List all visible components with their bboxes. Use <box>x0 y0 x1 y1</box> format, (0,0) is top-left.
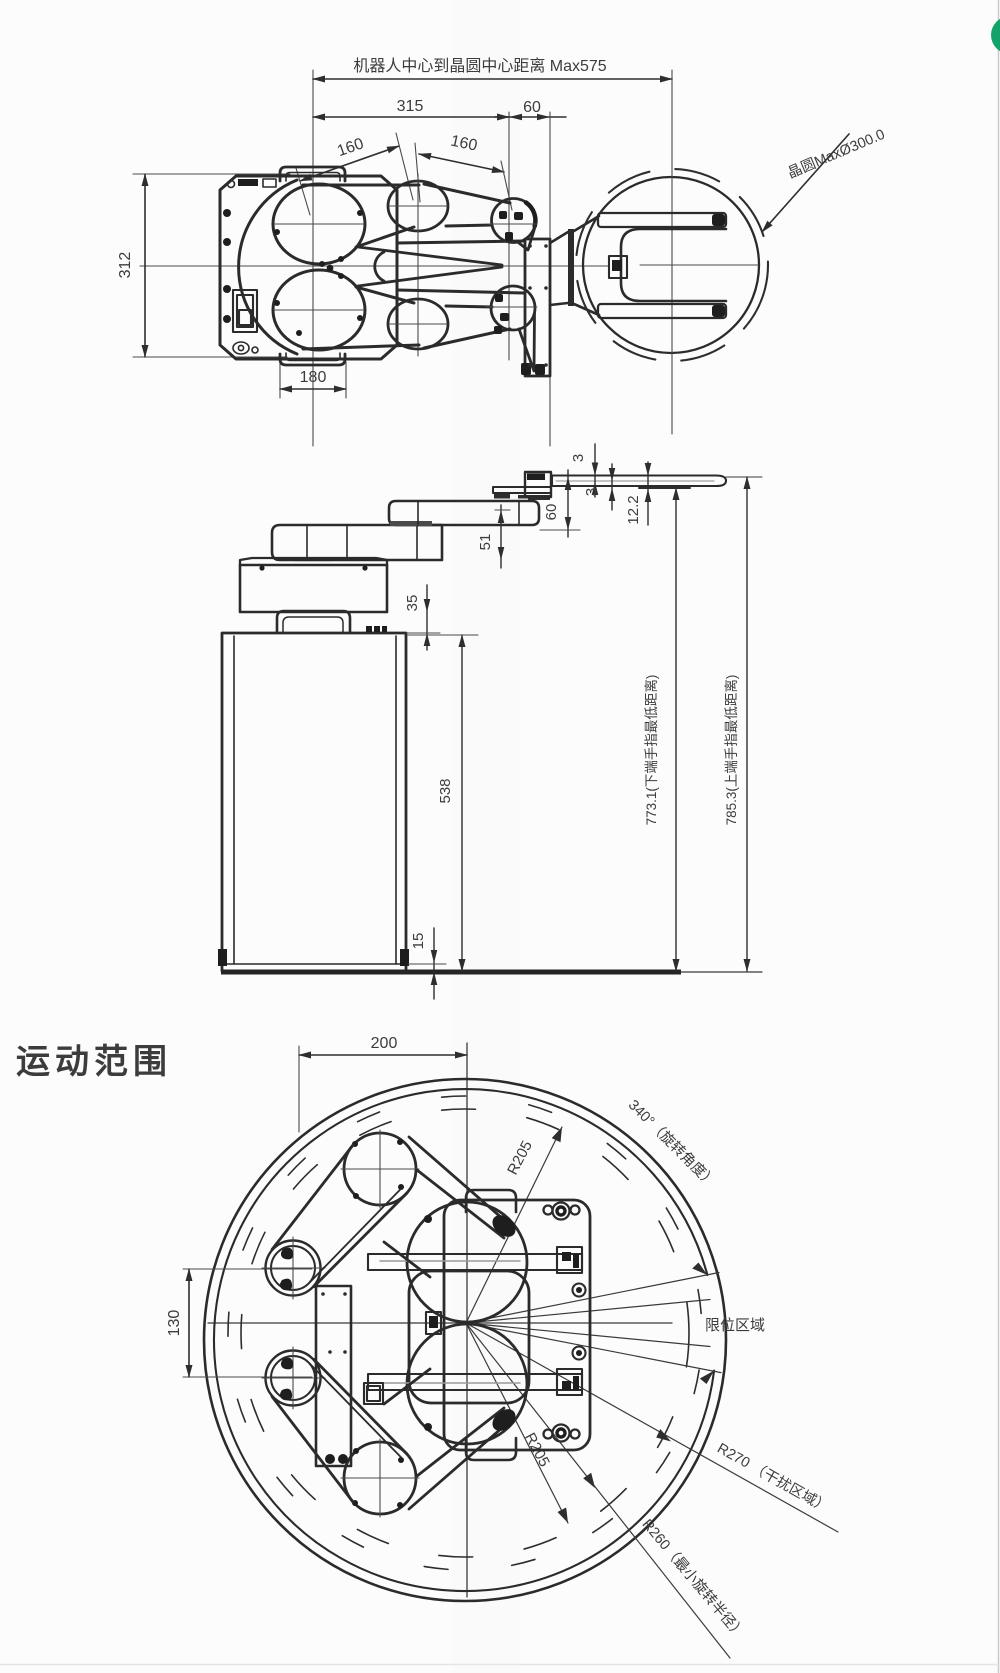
svg-text:12.2: 12.2 <box>625 495 642 524</box>
svg-text:60: 60 <box>543 504 560 521</box>
svg-text:R260（最小旋转半径）: R260（最小旋转半径） <box>639 1516 749 1642</box>
svg-text:538: 538 <box>437 778 454 803</box>
svg-text:315: 315 <box>397 98 424 115</box>
svg-text:晶圆MaxØ300.0: 晶圆MaxØ300.0 <box>785 127 887 182</box>
svg-text:773.1(下端手指最低距离): 773.1(下端手指最低距离) <box>643 675 659 826</box>
svg-text:机器人中心到晶圆中心距离 Max575: 机器人中心到晶圆中心距离 Max575 <box>353 57 606 75</box>
svg-text:312: 312 <box>117 252 134 279</box>
svg-text:限位区域: 限位区域 <box>705 1317 765 1334</box>
svg-text:运动范围: 运动范围 <box>16 1043 172 1081</box>
svg-text:130: 130 <box>166 1310 183 1337</box>
svg-text:15: 15 <box>410 933 427 950</box>
svg-text:3: 3 <box>583 488 600 496</box>
svg-text:160: 160 <box>335 135 366 160</box>
svg-text:R270 （干扰区域）: R270 （干扰区域） <box>714 1440 832 1517</box>
svg-text:785.3(上端手指最低距离): 785.3(上端手指最低距离) <box>723 675 739 826</box>
svg-text:51: 51 <box>477 534 494 551</box>
svg-text:180: 180 <box>300 369 327 386</box>
svg-text:3: 3 <box>570 454 587 462</box>
svg-text:60: 60 <box>523 99 541 116</box>
svg-text:35: 35 <box>404 595 421 612</box>
svg-text:200: 200 <box>371 1035 398 1052</box>
